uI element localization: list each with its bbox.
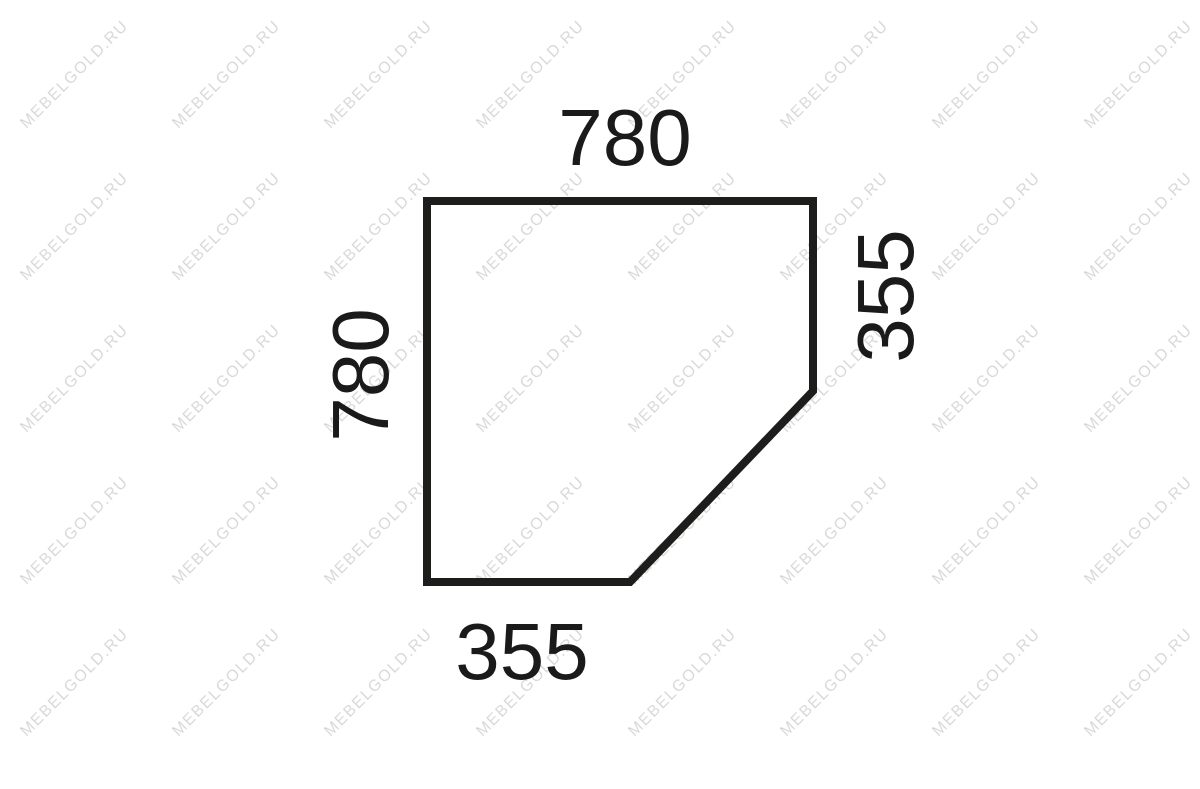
dimension-right: 355 <box>846 229 926 362</box>
dimension-left: 780 <box>321 308 401 441</box>
dimension-bottom: 355 <box>455 612 588 692</box>
dimension-top: 780 <box>558 98 691 178</box>
diagram-canvas: MEBELGOLD.RUMEBELGOLD.RUMEBELGOLD.RUMEBE… <box>0 0 1200 789</box>
panel-outline-shape <box>427 201 813 582</box>
